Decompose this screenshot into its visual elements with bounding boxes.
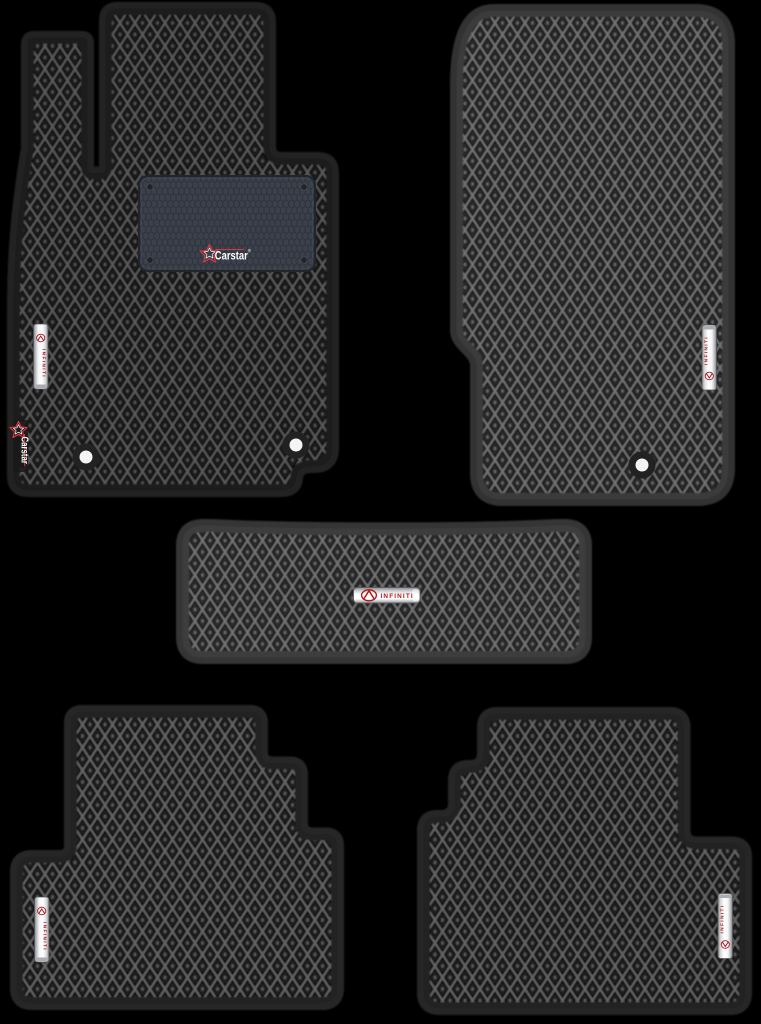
svg-text:Carstar: Carstar xyxy=(215,250,248,263)
svg-text:INFINITI: INFINITI xyxy=(41,922,47,951)
svg-text:Carstar: Carstar xyxy=(19,437,30,465)
svg-text:INFINITI: INFINITI xyxy=(40,349,46,378)
svg-text:INFINITI: INFINITI xyxy=(720,905,726,934)
svg-text:®: ® xyxy=(248,248,252,254)
svg-text:INFINITI: INFINITI xyxy=(381,593,414,600)
svg-text:INFINITI: INFINITI xyxy=(704,336,710,365)
